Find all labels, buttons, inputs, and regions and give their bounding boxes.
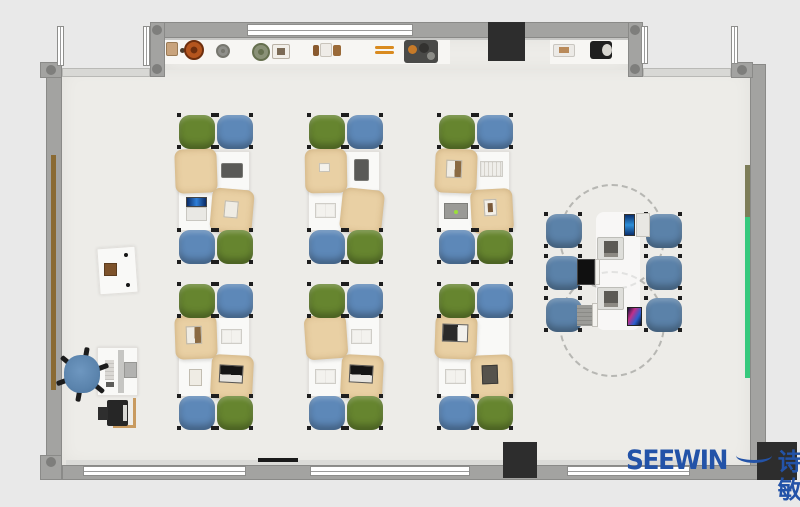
decor-tray-fruit-orange: [408, 45, 417, 54]
floorplan-canvas: SEEWIN 诗敏: [0, 0, 800, 507]
desk-item-book: [221, 329, 242, 344]
teacher-office-chair: [64, 355, 100, 393]
wall-joint-3: [630, 64, 640, 74]
chair-green: [309, 115, 345, 149]
chair-green: [217, 396, 253, 430]
desk-knob-1: [126, 283, 130, 287]
desk-item-darkbook: [482, 365, 499, 385]
wall-joint-4: [46, 65, 56, 75]
wall-joint-6: [46, 457, 56, 467]
decor-sticks-2: [375, 51, 394, 54]
desk-item-pic: [483, 199, 497, 217]
desk-item-cloth: [470, 354, 514, 399]
laptop-lid: [592, 303, 598, 327]
desk-accessory: [106, 382, 114, 387]
column-bottom-center: [503, 442, 537, 478]
desk-item-note: [223, 200, 238, 218]
teacher-side-desk-box: [104, 263, 117, 276]
chair-green: [217, 230, 253, 264]
chair-green: [309, 284, 345, 318]
desk-item-cloth: [304, 314, 349, 361]
desk-item-card: [319, 163, 330, 172]
decor-box-white: [320, 43, 332, 57]
chair-green: [439, 284, 475, 318]
board-green-right-wall: [745, 217, 750, 378]
chair-blue: [477, 115, 513, 149]
mini-cabinet-front: [604, 241, 618, 257]
wall-joint-2: [630, 25, 640, 35]
desk-item-tablet: [221, 163, 243, 178]
laptop-base: [577, 305, 592, 326]
smartphone: [627, 307, 642, 326]
window-upper-right: [641, 26, 648, 64]
chair-blue: [309, 396, 345, 430]
desk-item-laptop: [219, 364, 244, 383]
laptop-edge: [595, 259, 600, 285]
logo-smile-icon: [736, 448, 772, 463]
window-bottom-2: [310, 466, 470, 476]
desk-item-cloth: [174, 148, 218, 193]
door-panel-left-wall: [51, 155, 56, 390]
logo-text-cn: 诗敏: [778, 448, 800, 504]
chair-blue: [217, 284, 253, 318]
column-top: [488, 22, 525, 61]
decor-book-brown-2: [333, 45, 341, 56]
chair-blue-collab: [646, 214, 682, 248]
desk: [474, 317, 510, 357]
chair-blue: [439, 230, 475, 264]
desk-item-cloth: [434, 314, 478, 359]
decor-tray-fruit-dark: [419, 43, 429, 53]
chair-green: [179, 284, 215, 318]
desk-item-laptop2: [442, 324, 469, 343]
wall-joint-1: [152, 64, 162, 74]
decor-tray-fruit-gray: [427, 52, 435, 60]
printer-stand-edge-v: [133, 398, 136, 428]
monitor: [124, 362, 137, 378]
printer-label: [123, 405, 127, 421]
window-upper-far-left: [57, 26, 64, 66]
window-bottom-1: [83, 466, 246, 476]
decor-plate-orange: [184, 40, 204, 60]
floorplan-scene: [0, 0, 800, 507]
decor-frame-inner: [277, 48, 285, 55]
decor-speaker-cone: [602, 44, 612, 56]
chair-blue: [477, 284, 513, 318]
mini-cabinet: [597, 237, 624, 260]
printer-tray: [98, 407, 108, 420]
decor-sticks: [375, 46, 394, 49]
wall-joint-5: [737, 65, 747, 75]
teacher-side-desk: [96, 246, 138, 296]
chair-blue-collab: [646, 298, 682, 332]
desk-item-laptop-dot: [454, 210, 458, 214]
desk-item-laptop: [349, 364, 374, 383]
chair-green: [347, 230, 383, 264]
chair-blue: [309, 230, 345, 264]
chair-green: [439, 115, 475, 149]
decor-box-white-2-inner: [559, 47, 569, 53]
window-upper-left: [143, 26, 150, 66]
glass-wall-left: [62, 68, 150, 77]
desk-item-book: [351, 329, 372, 344]
decor-box-tan: [166, 42, 178, 56]
board-olive-right-wall: [745, 165, 750, 217]
chair-green: [477, 230, 513, 264]
tablet-display-screen: [624, 214, 635, 236]
desk-item-tablet: [354, 159, 369, 181]
chair-blue: [347, 284, 383, 318]
chair-green: [347, 396, 383, 430]
wall-joint-0: [152, 25, 162, 35]
desk-item-book: [315, 203, 336, 218]
decor-speaker: [590, 41, 612, 59]
tablet-display-stand: [636, 213, 650, 237]
mini-cabinet: [597, 287, 624, 310]
radiator: [258, 458, 298, 462]
desk-knob-0: [124, 253, 128, 257]
chair-blue-collab: [546, 214, 582, 248]
desk-item-booklet: [189, 369, 202, 386]
decor-frame: [272, 44, 290, 59]
chair-blue-collab: [646, 256, 682, 290]
desk-item-book: [446, 160, 463, 179]
desk-item-cloth: [305, 149, 348, 194]
desk-item-laptop-base: [186, 207, 207, 221]
desk-item-cloth: [434, 148, 478, 193]
logo-text-en: SEEWIN: [626, 448, 727, 474]
window-top-center: [247, 24, 413, 36]
chair-blue: [179, 396, 215, 430]
decor-box-white-2: [553, 44, 575, 57]
window-upper-far-right: [731, 26, 738, 64]
chair-blue: [179, 230, 215, 264]
wall-right: [750, 64, 766, 480]
desk-item-book: [445, 369, 466, 384]
desk-item-book: [186, 326, 203, 345]
desk-item-cloth: [174, 314, 218, 359]
mini-cabinet-front: [604, 291, 618, 307]
glass-wall-right: [643, 68, 731, 77]
decor-plant: [252, 43, 270, 61]
laptop-screen: [577, 259, 595, 285]
desk-item-laptop-screen: [186, 197, 207, 207]
decor-book-brown: [313, 45, 319, 56]
decor-plate-gray: [216, 44, 230, 58]
chair-green: [477, 396, 513, 430]
desk-item-notebook: [480, 161, 503, 177]
chair-blue: [347, 115, 383, 149]
chair-blue: [439, 396, 475, 430]
chair-blue: [217, 115, 253, 149]
chair-green: [179, 115, 215, 149]
seewin-logo: SEEWIN 诗敏: [626, 448, 800, 488]
desk-item-book: [315, 369, 336, 384]
